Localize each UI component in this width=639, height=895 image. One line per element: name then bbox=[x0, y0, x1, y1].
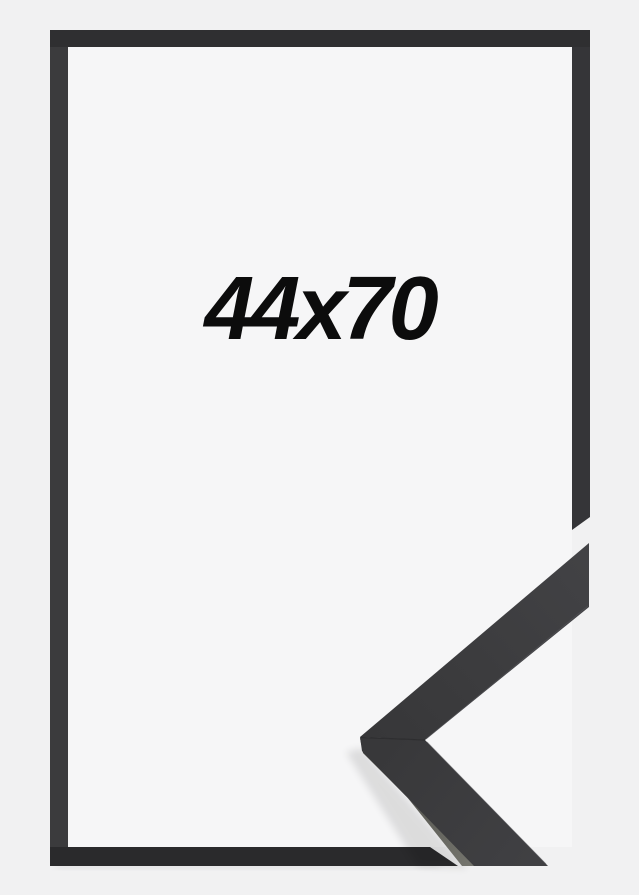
frame-left-bar bbox=[50, 47, 68, 866]
frame-product-image: 44x70 bbox=[0, 0, 639, 895]
frame-bottom-bar bbox=[50, 847, 458, 866]
frame-top-bar bbox=[50, 30, 590, 47]
frame-opening bbox=[68, 47, 572, 847]
size-label: 44x70 bbox=[0, 264, 639, 354]
frame-graphic bbox=[0, 0, 639, 895]
